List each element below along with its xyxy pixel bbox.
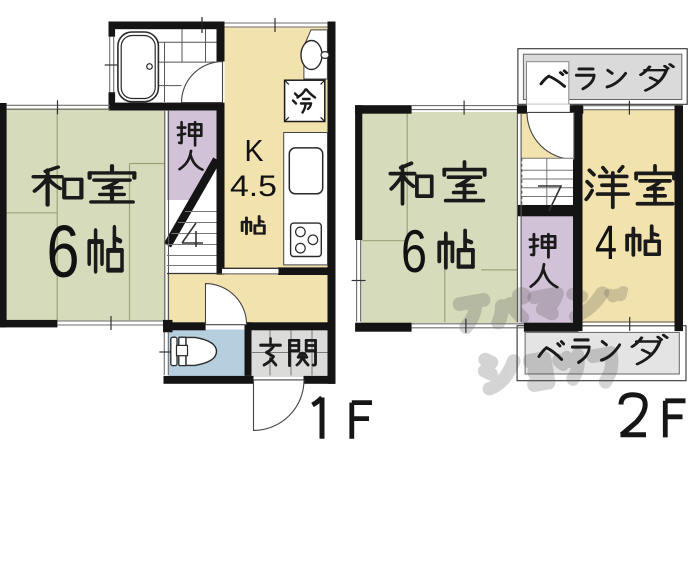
svg-text:4.5: 4.5 (230, 170, 277, 203)
svg-text:4: 4 (595, 217, 617, 270)
svg-text:6: 6 (47, 210, 80, 293)
svg-text:K: K (245, 133, 264, 168)
svg-text:6: 6 (401, 218, 427, 285)
